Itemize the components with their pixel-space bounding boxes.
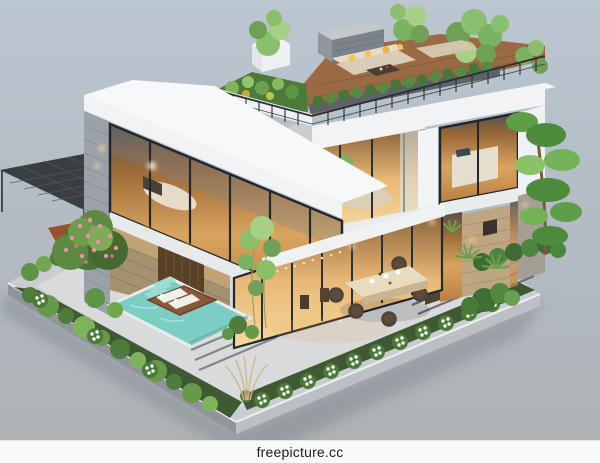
topiary-ball [85, 288, 105, 308]
white-column [418, 127, 438, 214]
watermark-bar: freepicture.cc [0, 440, 600, 463]
screenshot: Isometric 3D rendering of a modern two-s… [0, 0, 600, 463]
watermark-text: freepicture.cc [257, 444, 344, 460]
scene-svg: Isometric 3D rendering of a modern two-s… [0, 0, 600, 441]
sheer-curtain [400, 129, 420, 216]
villa-3d-render: Isometric 3D rendering of a modern two-s… [0, 0, 600, 441]
yellow-pillow [349, 55, 356, 62]
dining-chair [330, 289, 343, 302]
